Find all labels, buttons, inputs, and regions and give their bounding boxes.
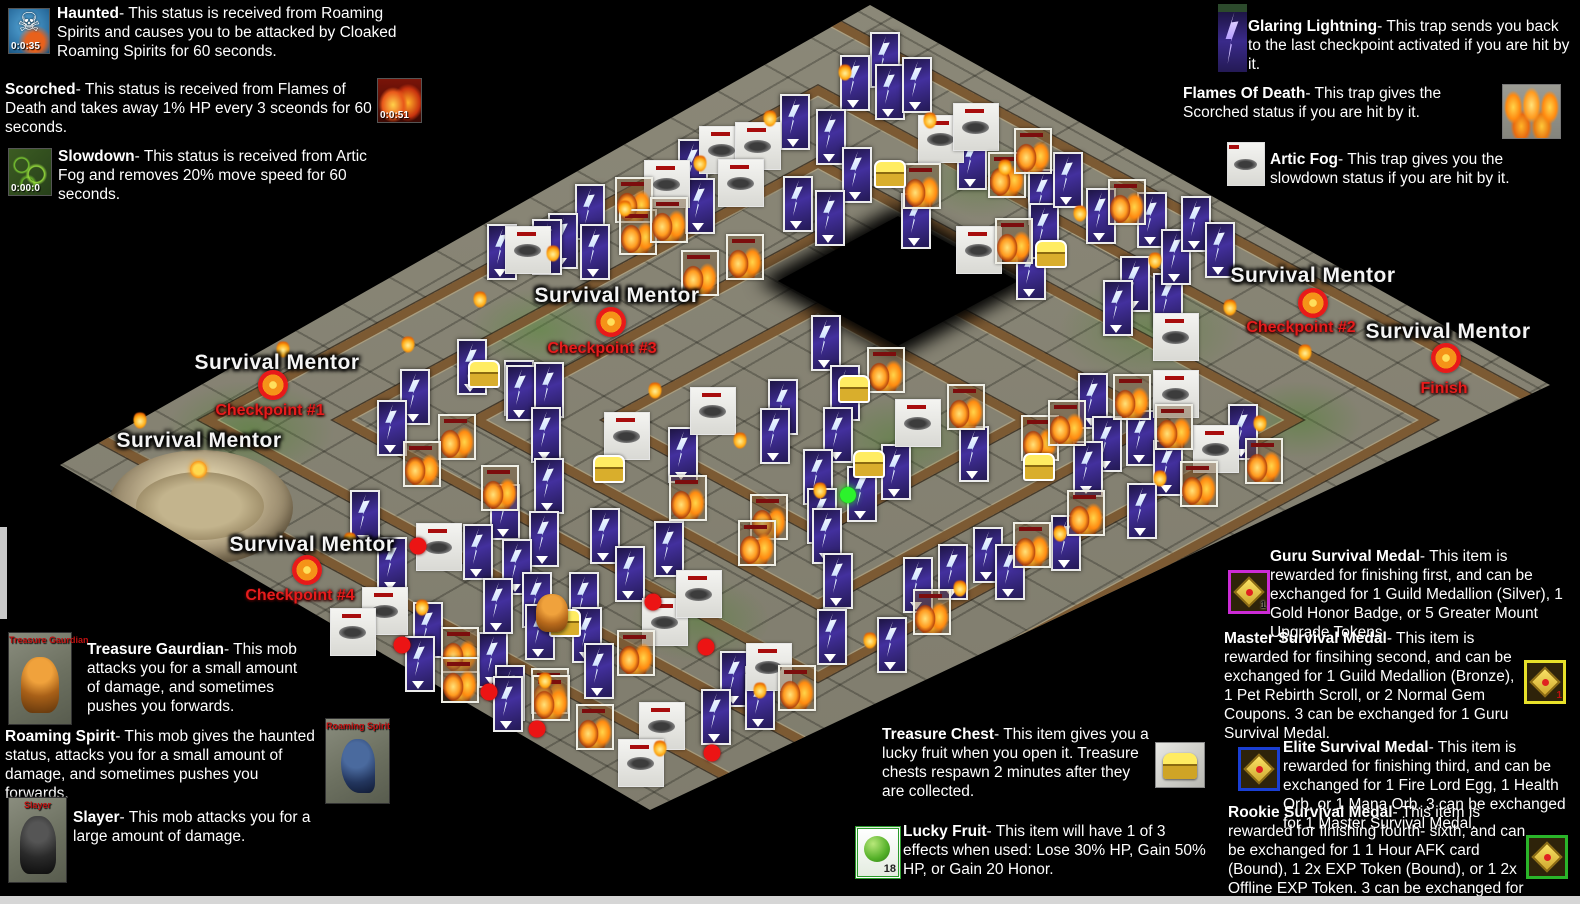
flames-of-death-icon — [1502, 84, 1561, 139]
skull-icon: ☠ — [9, 7, 49, 38]
slayer-name: Slayer — [73, 809, 120, 826]
treasure-gaurdian-figure — [21, 657, 59, 713]
survival-map-guide: Survival MentorSurvival MentorSurvival M… — [0, 0, 1580, 904]
legend-glaring-lightning: Glaring Lightning- This trap sends you b… — [1248, 17, 1570, 74]
legend-rookie-medal: Rookie Survival Medal- This item is rewa… — [1228, 803, 1528, 904]
roaming-spirit-portrait: Roaming Spirit — [325, 718, 390, 804]
lucky-fruit-name: Lucky Fruit — [903, 823, 987, 840]
legend-scorched: Scorched- This status is received from F… — [5, 80, 373, 137]
roaming-spirit-portrait-label: Roaming Spirit — [326, 721, 389, 731]
scorched-timer: 0:0:51 — [380, 110, 409, 121]
elite-survival-medal-icon — [1238, 747, 1280, 791]
elite-medal-name: Elite Survival Medal — [1283, 739, 1429, 756]
guru-medal-name: Guru Survival Medal — [1270, 548, 1420, 565]
guru-survival-medal-icon: 1 — [1228, 570, 1270, 614]
start-mentor-dot — [190, 461, 207, 478]
artic-fog-icon — [1227, 142, 1265, 186]
glaring-lightning-icon — [1218, 4, 1247, 72]
legend-treasure-gaurdian: Treasure Gaurdian- This mob attacks you … — [87, 640, 303, 716]
window-edge-left — [0, 527, 7, 619]
artic-fog-name: Artic Fog — [1270, 151, 1338, 168]
haunted-status-icon: ☠ 0:0:35 — [8, 8, 50, 54]
legend-haunted: Haunted- This status is received from Ro… — [57, 4, 413, 61]
treasure-chest-name: Treasure Chest — [882, 726, 994, 743]
treasure-chest-item-icon — [1155, 742, 1205, 788]
slayer-portrait-label: Slayer — [9, 800, 66, 810]
window-edge-bottom — [0, 896, 1580, 904]
guru-medal-count: 1 — [1260, 600, 1266, 611]
rookie-medal-name: Rookie Survival Medal — [1228, 804, 1393, 821]
legend-artic-fog: Artic Fog- This trap gives you the slowd… — [1270, 150, 1562, 188]
legend-lucky-fruit: Lucky Fruit- This item will have 1 of 3 … — [903, 822, 1209, 879]
legend-roaming-spirit: Roaming Spirit- This mob gives the haunt… — [5, 727, 321, 803]
master-medal-name: Master Survival Medal — [1224, 630, 1387, 647]
lucky-fruit-item-icon: 18 — [855, 826, 901, 879]
slayer-portrait: Slayer — [8, 797, 67, 883]
slowdown-status-icon: 0:00:0 — [8, 148, 52, 196]
scorched-name: Scorched — [5, 81, 76, 98]
legend-guru-medal: Guru Survival Medal- This item is reward… — [1270, 547, 1566, 642]
flames-of-death-name: Flames Of Death — [1183, 85, 1305, 102]
treasure-gaurdian-name: Treasure Gaurdian — [87, 641, 224, 658]
legend-slayer: Slayer- This mob attacks you for a large… — [73, 808, 311, 846]
treasure-gaurdian-portrait: Treasure Gaurdian — [8, 632, 72, 725]
legend-treasure-chest: Treasure Chest- This item gives you a lu… — [882, 725, 1150, 801]
slowdown-name: Slowdown — [58, 148, 135, 165]
rookie-survival-medal-icon — [1526, 835, 1568, 879]
treasure-gaurdian-portrait-label: Treasure Gaurdian — [9, 635, 71, 645]
master-medal-count: 1 — [1556, 690, 1562, 701]
slayer-figure — [20, 816, 56, 874]
legend-master-medal: Master Survival Medal- This item is rewa… — [1224, 629, 1522, 743]
lucky-fruit-count: 18 — [884, 863, 896, 875]
glaring-lightning-name: Glaring Lightning — [1248, 18, 1377, 35]
roaming-spirit-name: Roaming Spirit — [5, 728, 115, 745]
scorched-status-icon: 0:0:51 — [377, 78, 422, 123]
haunted-name: Haunted — [57, 5, 119, 22]
legend-slowdown: Slowdown- This status is received from A… — [58, 147, 388, 204]
master-survival-medal-icon: 1 — [1524, 660, 1566, 704]
roaming-spirit-figure — [341, 739, 375, 793]
slowdown-timer: 0:00:0 — [11, 183, 40, 194]
legend-flames-of-death: Flames Of Death- This trap gives the Sco… — [1183, 84, 1495, 122]
haunted-timer: 0:0:35 — [11, 41, 40, 52]
